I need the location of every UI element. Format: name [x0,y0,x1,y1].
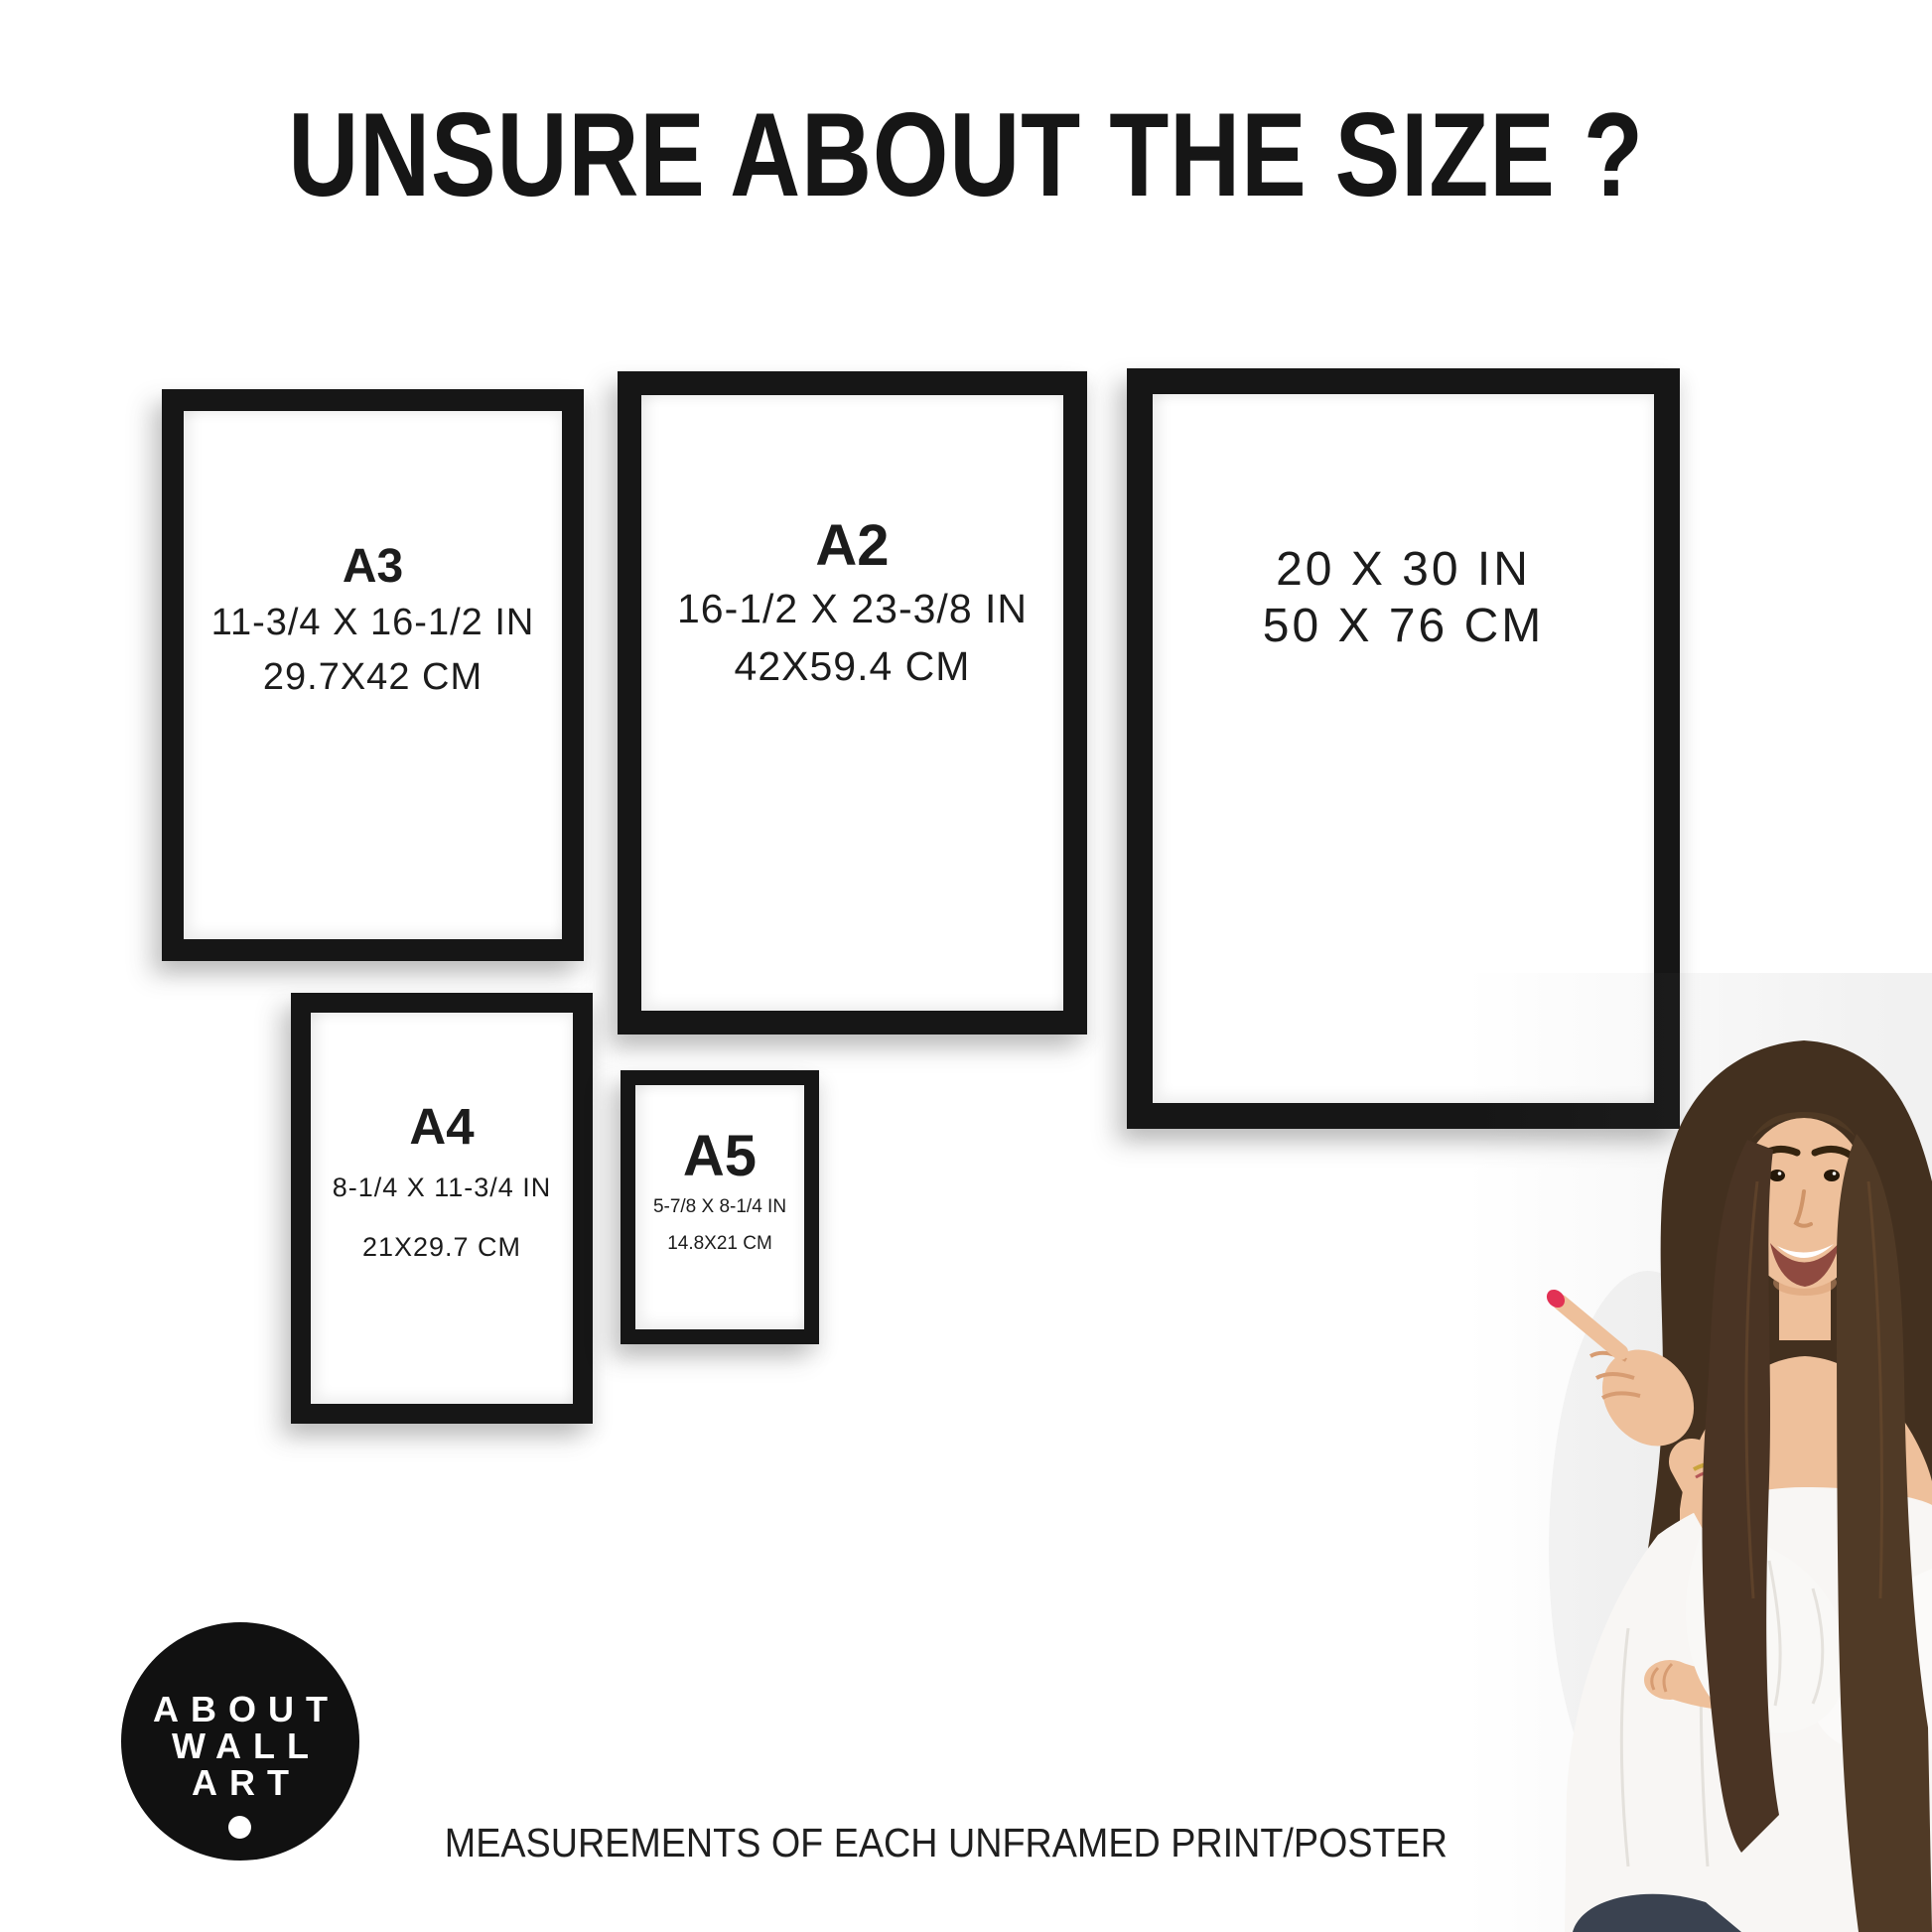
frame-a3-text: A3 11-3/4 X 16-1/2 IN 29.7X42 CM [184,538,562,705]
woman-figure [1543,1040,1932,1932]
logo-line-art: ART [121,1764,371,1801]
left-eye [1769,1170,1785,1181]
footer-caption: MEASUREMENTS OF EACH UNFRAMED PRINT/POST… [445,1820,1308,1865]
frame-20x30: 20 X 30 IN 50 X 76 CM [1127,368,1680,1129]
left-eye-glint [1778,1172,1782,1175]
frame-a3-label: A3 [184,538,562,596]
woman-photo [1509,1033,1932,1932]
logo-line-about: ABOUT [121,1691,371,1727]
page-title: UNSURE ABOUT THE SIZE ? [174,95,1758,214]
frame-a4-text: A4 8-1/4 X 11-3/4 IN 21X29.7 CM [311,1096,573,1277]
frame-20x30-size-inches: 20 X 30 IN [1153,541,1654,598]
frame-a2-text: A2 16-1/2 X 23-3/8 IN 42X59.4 CM [641,512,1063,695]
logo-line-wall: WALL [121,1727,371,1764]
frame-a4: A4 8-1/4 X 11-3/4 IN 21X29.7 CM [291,993,593,1424]
frame-a2: A2 16-1/2 X 23-3/8 IN 42X59.4 CM [618,371,1087,1035]
right-eye [1824,1170,1840,1181]
brand-logo: ABOUT WALL ART [121,1622,359,1861]
frame-a2-size-cm: 42X59.4 CM [641,637,1063,695]
frame-a5-size-cm: 14.8X21 CM [635,1225,804,1262]
frame-a3-size-cm: 29.7X42 CM [184,650,562,705]
frame-a3-size-inches: 11-3/4 X 16-1/2 IN [184,596,562,650]
logo-dot [228,1816,251,1839]
frame-a4-size-cm: 21X29.7 CM [311,1217,573,1277]
frame-a2-size-inches: 16-1/2 X 23-3/8 IN [641,580,1063,637]
frame-a5-label: A5 [635,1125,804,1188]
frame-a5: A5 5-7/8 X 8-1/4 IN 14.8X21 CM [621,1070,819,1344]
frame-a4-size-inches: 8-1/4 X 11-3/4 IN [311,1158,573,1217]
frame-a5-size-inches: 5-7/8 X 8-1/4 IN [635,1188,804,1225]
right-eye-glint [1833,1172,1837,1175]
frame-a2-label: A2 [641,512,1063,580]
frame-a5-text: A5 5-7/8 X 8-1/4 IN 14.8X21 CM [635,1125,804,1262]
frame-20x30-text: 20 X 30 IN 50 X 76 CM [1153,541,1654,654]
size-guide-poster: UNSURE ABOUT THE SIZE ? A3 11-3/4 X 16-1… [0,0,1932,1932]
frame-a3: A3 11-3/4 X 16-1/2 IN 29.7X42 CM [162,389,584,961]
frame-20x30-size-cm: 50 X 76 CM [1153,598,1654,654]
frame-a4-label: A4 [311,1096,573,1158]
